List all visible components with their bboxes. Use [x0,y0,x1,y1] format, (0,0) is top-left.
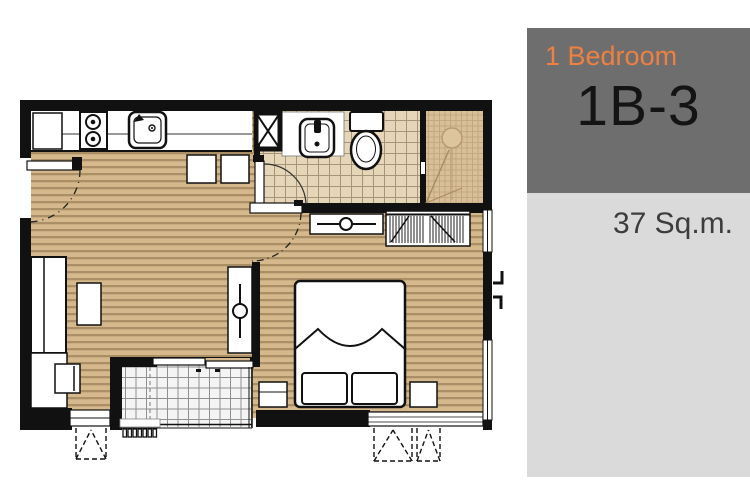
window-bedroom [368,412,483,426]
wall-living-bedroom [252,262,260,367]
balcony-floor [120,365,252,427]
washbasin-icon [282,112,344,157]
kitchen-sink-icon [129,112,166,148]
wall-right-middle [483,252,492,340]
nightstand-right [410,382,437,407]
service-shaft [256,113,280,149]
wall-left-lower [20,218,31,410]
casement-symbol-left [76,428,106,459]
wall-left-upper [20,100,31,158]
window-left [70,410,110,426]
wall-right-corner [483,420,492,430]
wall-right-upper [483,100,492,210]
unit-info-panel: 1 Bedroom 1B-3 37 Sq.m. [527,28,750,477]
pillow [352,373,397,404]
tv-icon [55,364,80,393]
unit-type-label: 1 Bedroom [527,28,750,72]
unit-info-body: 37 Sq.m. [527,193,750,477]
coffee-table-icon [77,283,101,325]
shower-drain [442,128,462,148]
toilet-icon [350,112,383,169]
shower-partition [420,111,426,205]
unit-area-label: 37 Sq.m. [527,193,750,241]
window-hooks-icon [493,271,502,309]
dressing-table-icon [228,267,252,353]
wall-top [20,100,492,111]
double-bed-icon [295,281,405,407]
stove-icon [80,112,107,149]
wall-bedroom-bottom [256,410,370,427]
wall-living-balcony [110,357,157,367]
nightstand-left [259,382,287,407]
wall-bottom-left [20,408,72,430]
casement-symbols-bedroom [374,428,440,461]
dresser-icon [310,214,383,234]
pillow [302,373,347,404]
sofa-icon [31,257,66,353]
unit-floorplan-page: 1 Bedroom 1B-3 37 Sq.m. [0,0,750,500]
door-handle [215,369,220,372]
unit-info-header: 1 Bedroom 1B-3 [527,28,750,193]
wardrobe-icon [386,211,470,246]
unit-code-label: 1B-3 [527,73,750,139]
fridge [33,113,62,149]
door-handle [196,369,201,372]
